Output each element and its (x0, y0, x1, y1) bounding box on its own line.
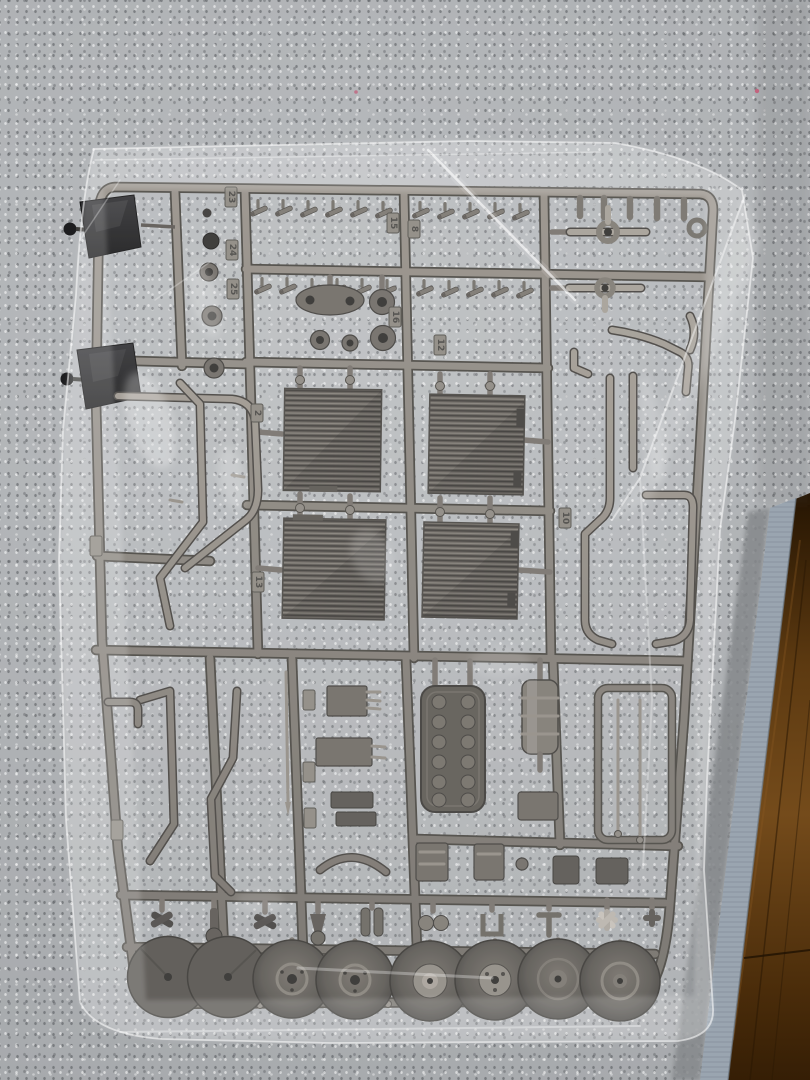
scene-overlay: 23 24 25 15 8 16 12 2 13 10 (0, 0, 810, 1080)
pink-fleck (354, 90, 358, 94)
pink-fleck (755, 89, 759, 93)
carpet-edge-shadow (758, 0, 810, 505)
mirror-stem-ball (64, 223, 77, 236)
bag-body (59, 141, 753, 1043)
carpet-flecks (354, 89, 759, 94)
plastic-bag (59, 141, 762, 1043)
photo-scene: 23 24 25 15 8 16 12 2 13 10 (0, 0, 810, 1080)
